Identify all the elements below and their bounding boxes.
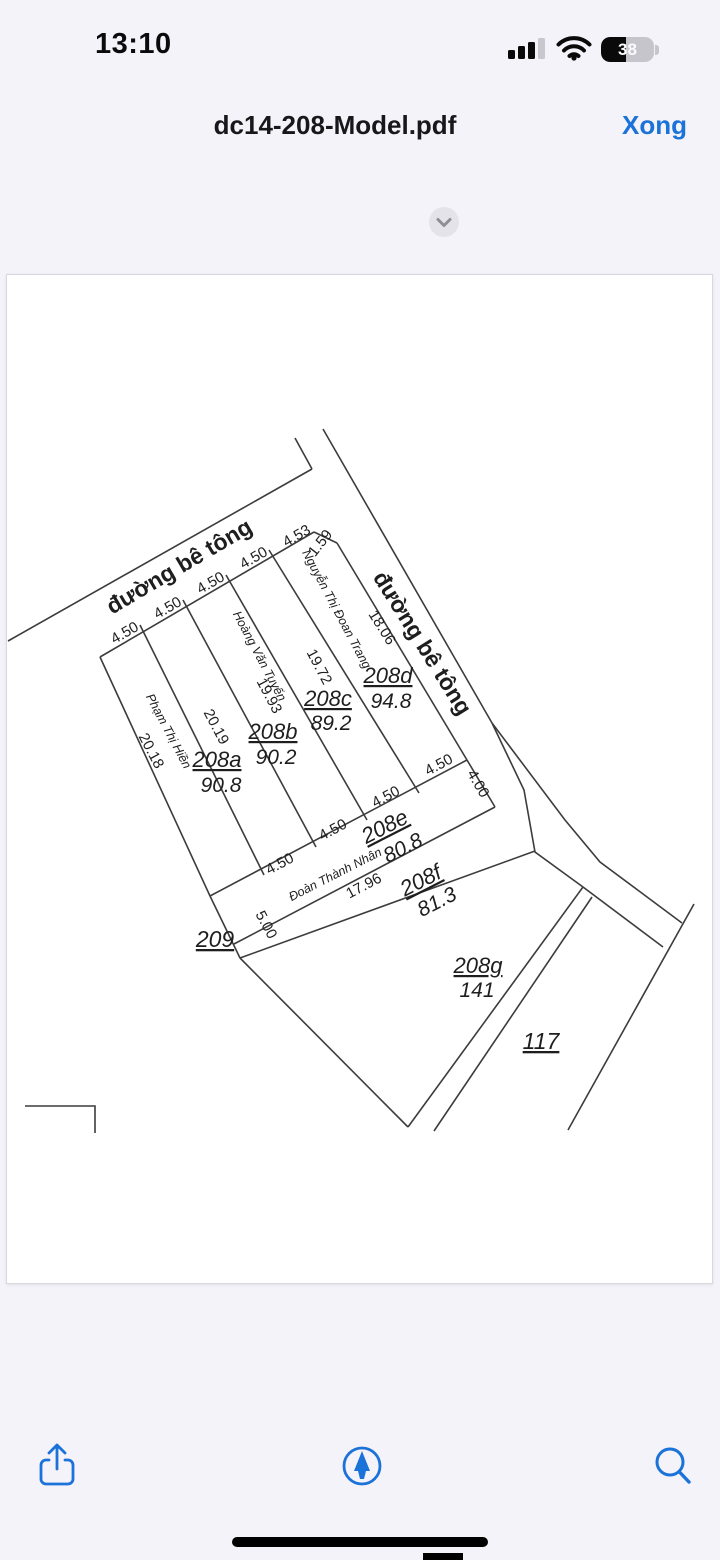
plot-label-208c: 208c — [303, 686, 352, 711]
plot117-east-edge — [568, 904, 694, 1130]
home-indicator[interactable] — [232, 1537, 488, 1547]
cellular-signal-icon — [508, 37, 550, 66]
wifi-icon — [556, 35, 592, 66]
plot-label-208g: 208g — [453, 953, 504, 978]
document-title: dc14-208-Model.pdf — [0, 95, 695, 155]
battery-icon: 38 — [601, 37, 659, 63]
clock-label: 13:10 — [95, 28, 172, 61]
battery-nub — [655, 45, 659, 55]
corner-mark — [25, 1106, 95, 1133]
markup-button[interactable] — [334, 1438, 390, 1494]
toolbar — [0, 1430, 720, 1510]
markup-icon — [334, 1481, 390, 1498]
parcel-labels: đường bê tông đường bê tông 4.50 4.50 4.… — [101, 513, 560, 1054]
plot208g-west-edge — [240, 958, 408, 1127]
measurement-label: 4.50 — [237, 543, 271, 572]
measurement-label: 5.00 — [252, 908, 281, 942]
share-button[interactable] — [29, 1438, 85, 1494]
plot-area-208c: 89.2 — [311, 712, 352, 735]
plot-label-208d: 208d — [363, 663, 414, 688]
measurement-label: 4.50 — [316, 816, 350, 845]
junction-line — [583, 887, 663, 947]
measurement-label: 4.50 — [151, 593, 185, 622]
plot-label-208a: 208a — [192, 747, 242, 772]
chevron-down-icon — [429, 224, 459, 241]
measurement-label: 20.18 — [135, 730, 168, 771]
plot-label-209: 209 — [195, 926, 235, 952]
parcel-lines — [8, 429, 694, 1133]
path-line-2 — [434, 897, 592, 1131]
road-notch — [295, 438, 312, 469]
measurement-label: 19.72 — [303, 646, 336, 687]
title-menu-button[interactable] — [429, 207, 459, 237]
plot-label-117: 117 — [523, 1028, 561, 1054]
measurement-label: 4.50 — [263, 850, 297, 879]
cadastral-drawing: đường bê tông đường bê tông 4.50 4.50 4.… — [6, 274, 713, 1284]
search-button[interactable] — [645, 1438, 701, 1494]
plot-area-208d: 94.8 — [371, 690, 412, 713]
plot-area-208b: 90.2 — [256, 746, 297, 769]
pdf-page[interactable]: đường bê tông đường bê tông 4.50 4.50 4.… — [6, 274, 713, 1284]
measurement-label: 20.19 — [200, 706, 233, 747]
battery-percent: 38 — [601, 37, 654, 62]
share-icon — [29, 1481, 85, 1498]
nav-bar: dc14-208-Model.pdf Xong — [0, 95, 720, 161]
battery-pill: 38 — [601, 37, 654, 62]
plot-area-208g: 141 — [459, 979, 494, 1002]
done-button[interactable]: Xong — [622, 95, 687, 155]
road-fork-east — [492, 723, 682, 923]
screen-artifact — [423, 1553, 463, 1560]
search-icon — [645, 1481, 701, 1498]
plot-area-208a: 90.8 — [201, 774, 242, 797]
path-line-1 — [408, 887, 583, 1127]
status-bar: 13:10 38 — [0, 0, 720, 70]
plot-label-208b: 208b — [248, 719, 298, 744]
measurement-label: 4.50 — [194, 568, 228, 597]
